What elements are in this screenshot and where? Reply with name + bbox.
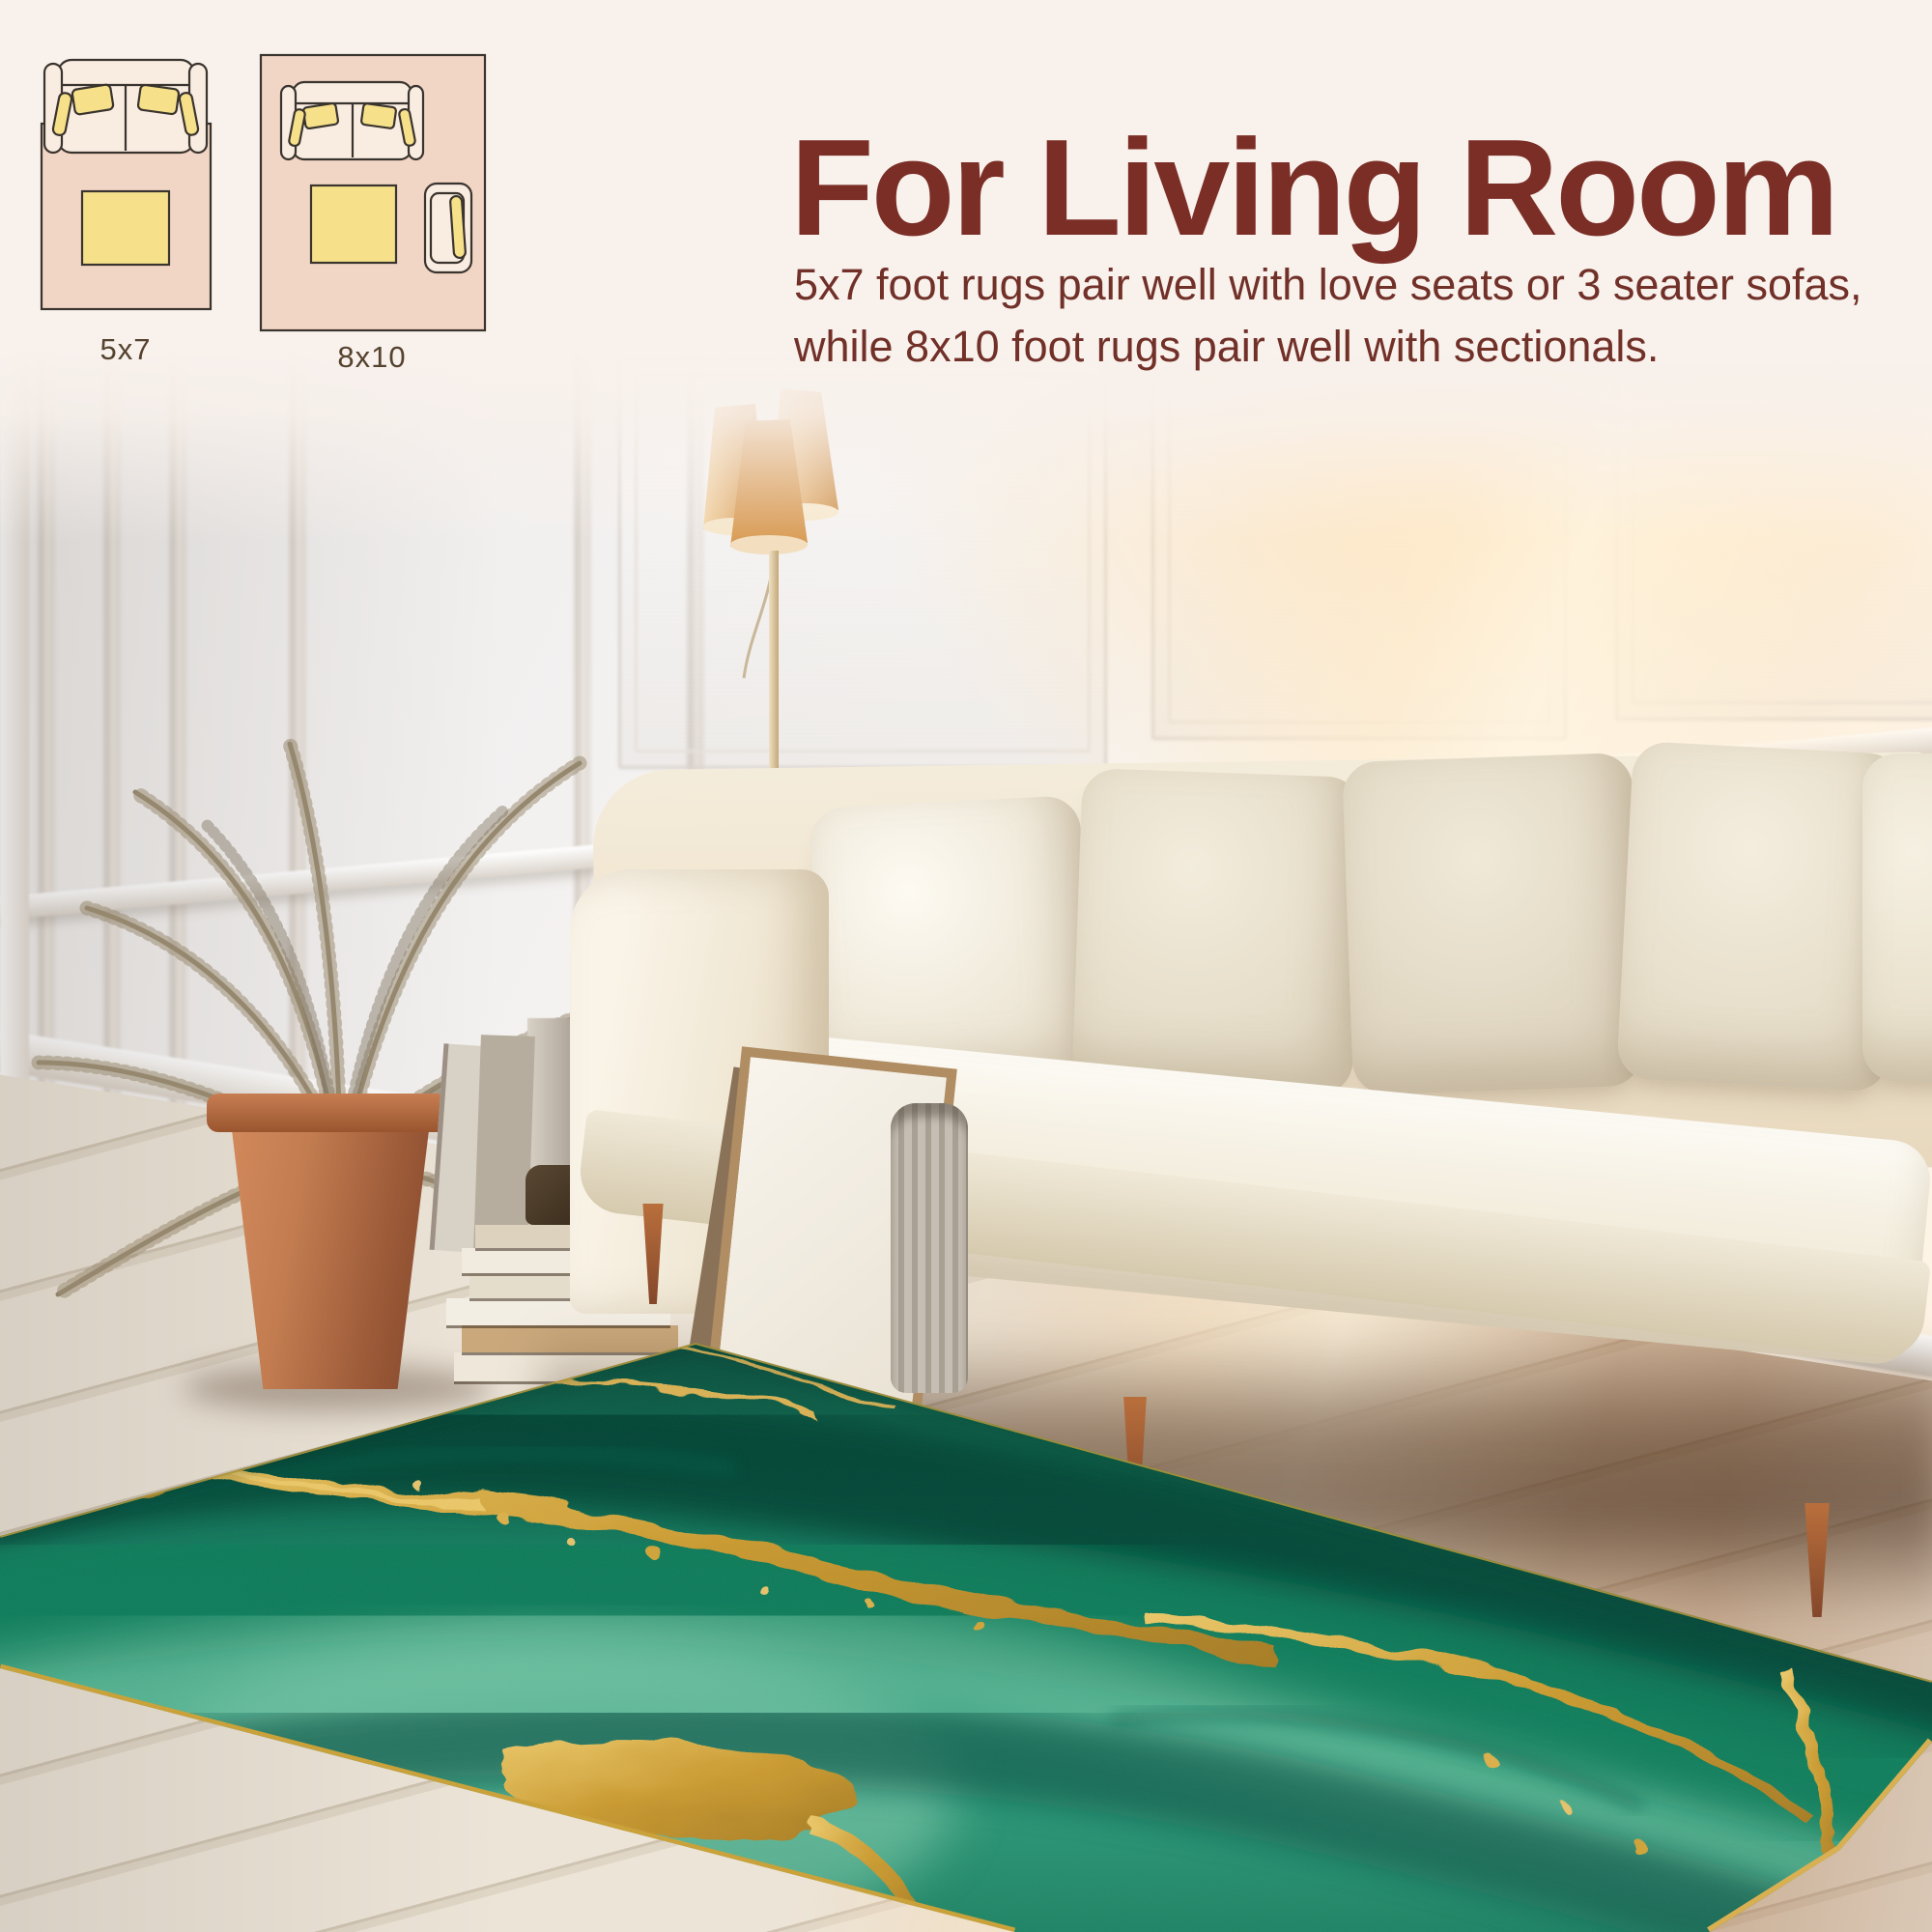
coffee-table-icon (82, 191, 169, 265)
rug-outline (42, 124, 211, 309)
sofa-pillow-icon (288, 102, 415, 146)
product-infographic: For Living Room 5x7 foot rugs pair well … (0, 0, 1932, 1932)
sofa-pillow-icon (52, 84, 199, 136)
sofa-top-view-icon (281, 82, 423, 159)
rug-size-diagram-5x7 (29, 46, 222, 328)
page-title: For Living Room (790, 113, 1911, 264)
coffee-table-icon (311, 185, 396, 263)
rug-outline (261, 55, 485, 330)
photo-top-fade (0, 348, 1932, 541)
rug-texture (0, 1314, 1932, 1932)
area-rug (0, 348, 1932, 1932)
armchair-top-view-icon (425, 184, 471, 272)
rug-size-diagram-8x10 (246, 34, 497, 343)
living-room-photo (0, 348, 1932, 1932)
loveseat-top-view-icon (44, 60, 207, 153)
